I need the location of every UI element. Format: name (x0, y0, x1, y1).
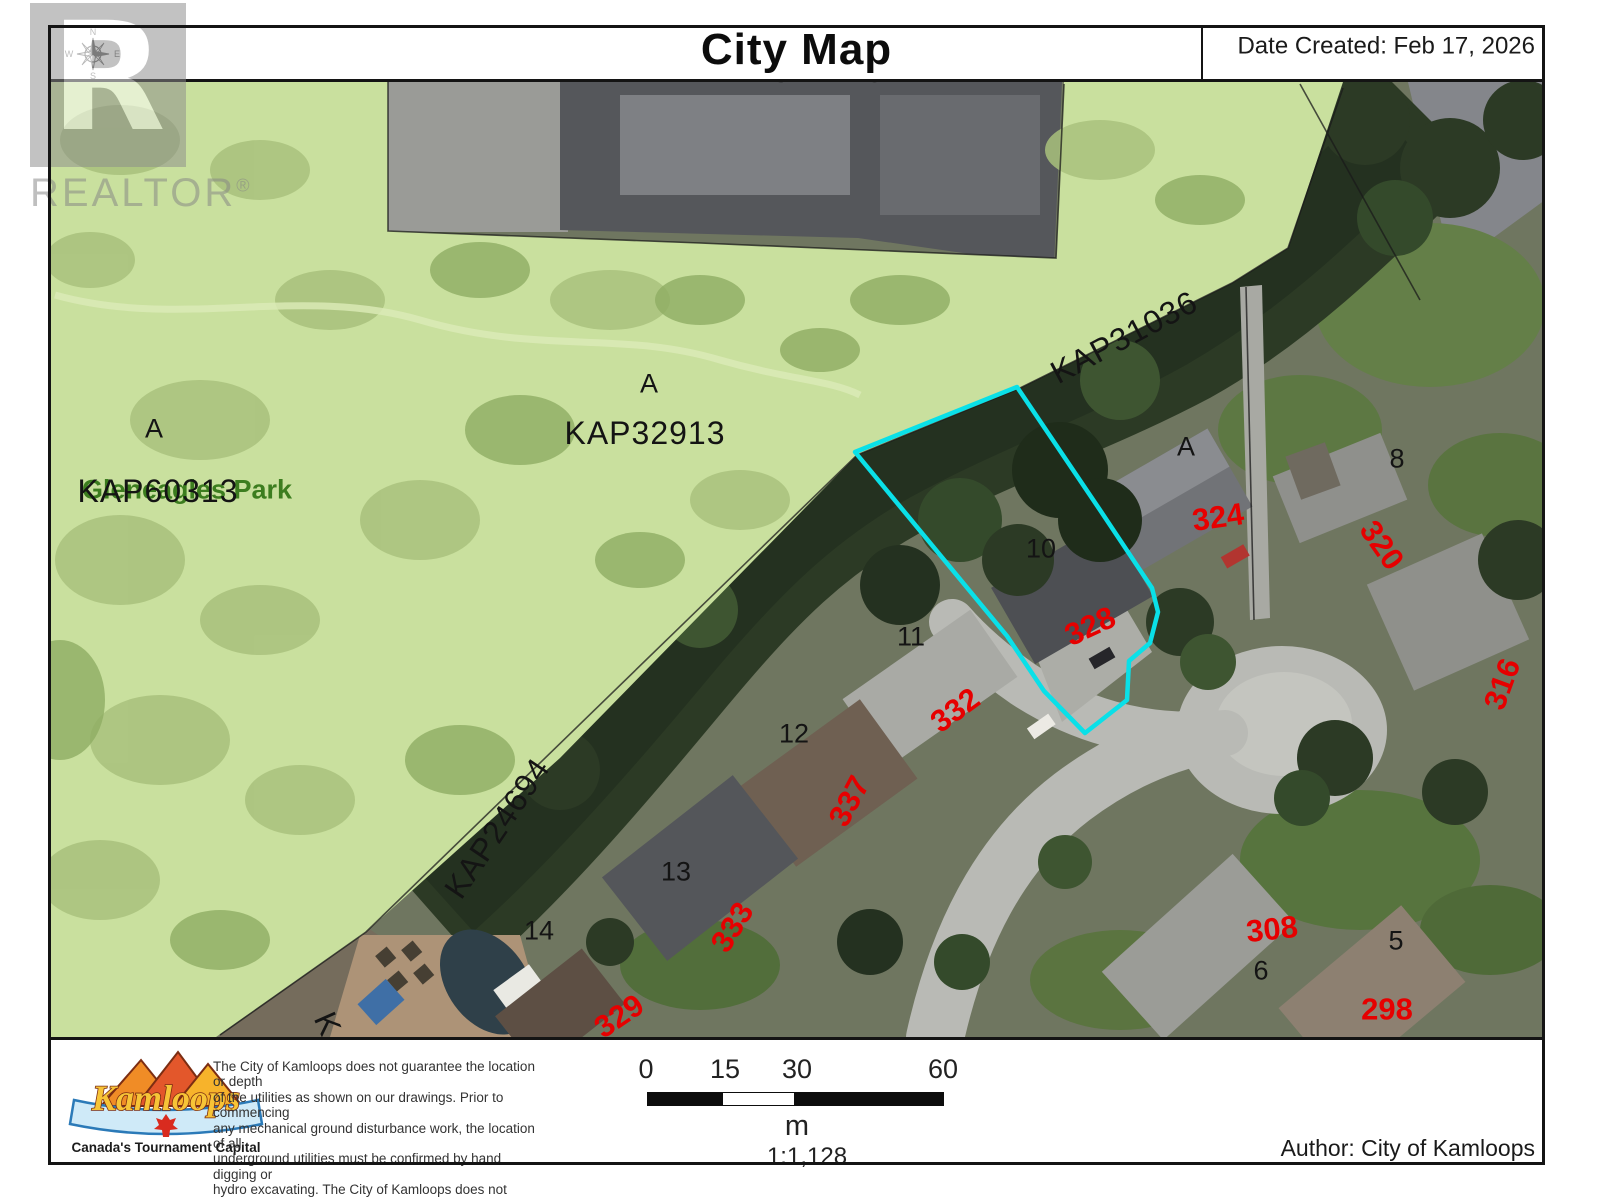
scale-tick-label: 15 (710, 1054, 740, 1085)
author-text: Author: City of Kamloops (1281, 1135, 1535, 1162)
footer-bar: Kamloops Canada's Tournament Capital The… (48, 1037, 1545, 1165)
scale-ratio: 1:1,128 (767, 1143, 847, 1171)
scale-tick-label: 0 (638, 1054, 653, 1085)
header-bar: N E S W City Map Date Created: Feb 17, 2… (48, 25, 1545, 82)
scale-bar-graphic (647, 1092, 944, 1106)
date-created-text: Date Created: Feb 17, 2026 (1237, 32, 1535, 60)
scale-unit: m (785, 1110, 809, 1143)
date-box: Date Created: Feb 17, 2026 (1201, 25, 1545, 79)
map-area[interactable] (48, 82, 1545, 1037)
scale-tick-label: 60 (928, 1054, 958, 1085)
disclaimer-line: hydro excavating. The City of Kamloops d… (213, 1182, 543, 1200)
aerial-imagery (48, 82, 1545, 1037)
scale-tick-label: 30 (782, 1054, 812, 1085)
